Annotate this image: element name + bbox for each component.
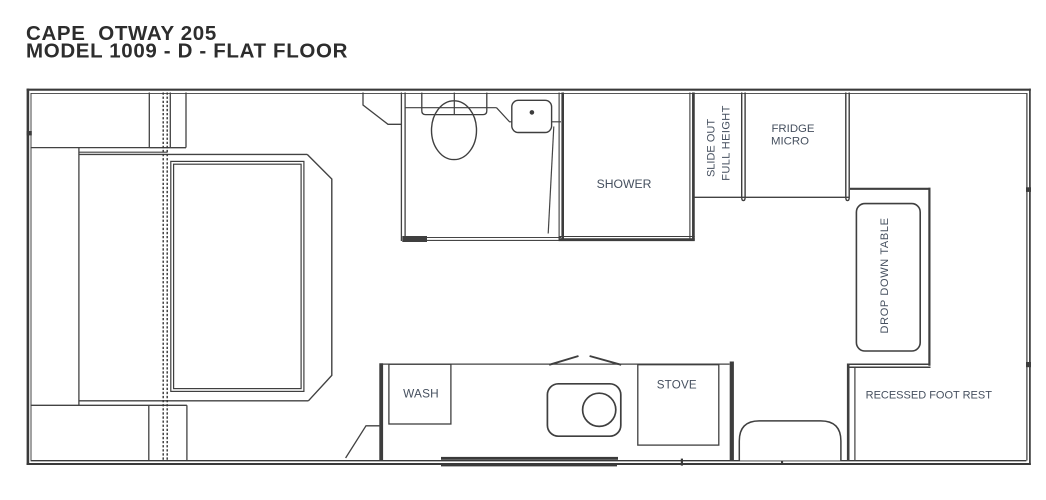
svg-text:STOVE: STOVE — [657, 379, 697, 392]
svg-text:DROP DOWN TABLE: DROP DOWN TABLE — [879, 217, 891, 333]
svg-text:SHOWER: SHOWER — [597, 177, 652, 191]
svg-text:FRIDGE: FRIDGE — [771, 123, 814, 135]
svg-text:MICRO: MICRO — [771, 135, 809, 147]
svg-text:FULL HEIGHT: FULL HEIGHT — [721, 105, 733, 181]
svg-text:RECESSED FOOT REST: RECESSED FOOT REST — [866, 390, 993, 402]
svg-text:WASH: WASH — [403, 386, 439, 400]
svg-text:SLIDE OUT: SLIDE OUT — [706, 119, 718, 177]
svg-text:MODEL 1009 - D - FLAT FLOOR: MODEL 1009 - D - FLAT FLOOR — [26, 40, 348, 63]
